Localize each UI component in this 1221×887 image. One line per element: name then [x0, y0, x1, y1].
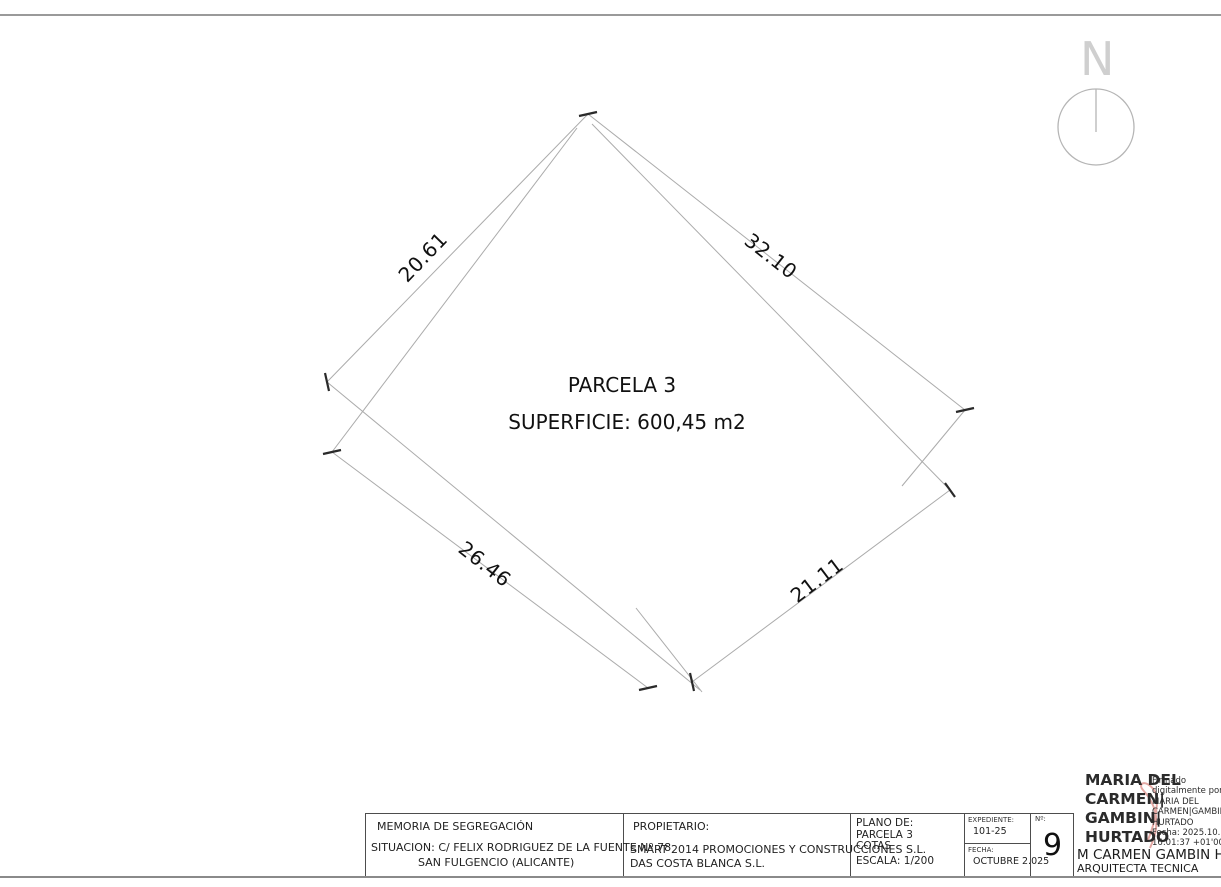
architect-title: ARQUITECTA TECNICA	[1077, 862, 1198, 875]
signature-detail-line: CARMEN|GAMBIN|	[1152, 807, 1221, 817]
titleblock-top-border	[365, 813, 1073, 814]
signature-detail-line: Fecha: 2025.10.30	[1152, 828, 1221, 838]
owner-label: PROPIETARIO:	[633, 820, 709, 833]
plan-label: PLANO DE:	[856, 817, 913, 829]
fecha-label: FECHA:	[968, 846, 994, 854]
signature-detail-line: MARIA DEL	[1152, 797, 1221, 807]
project-title: MEMORIA DE SEGREGACIÓN	[377, 820, 533, 833]
sheet-number: 9	[1043, 828, 1062, 863]
expediente-value: 101-25	[973, 826, 1007, 837]
north-symbol	[1058, 89, 1134, 165]
titleblock-divider	[365, 813, 366, 876]
sheet-number-label: Nº:	[1035, 815, 1046, 823]
situation-line1: SITUACION: C/ FELIX RODRIGUEZ DE LA FUEN…	[371, 841, 671, 854]
titleblock-divider	[964, 843, 1030, 844]
dimension-lines	[327, 114, 965, 692]
signature-detail-line: digitalmente por	[1152, 786, 1221, 796]
expediente-label: EXPEDIENTE:	[968, 816, 1014, 824]
fecha-value: OCTUBRE 2.025	[973, 856, 1049, 867]
plan-scale: ESCALA: 1/200	[856, 855, 934, 867]
plan-sheet: { "drawing": { "parcel_label": "PARCELA …	[0, 0, 1221, 887]
digital-signature-details: Firmado digitalmente por MARIA DEL CARME…	[1152, 776, 1221, 849]
owner-line2: DAS COSTA BLANCA S.L.	[630, 857, 765, 870]
parcel-plan-drawing	[0, 0, 1221, 887]
situation-line2: SAN FULGENCIO (ALICANTE)	[418, 856, 574, 869]
parcel-name-label: PARCELA 3	[472, 373, 772, 397]
signature-detail-line: HURTADO	[1152, 818, 1221, 828]
signature-detail-line: Firmado	[1152, 776, 1221, 786]
titleblock-divider	[1073, 813, 1074, 876]
north-label: N	[1080, 36, 1114, 82]
titleblock-divider	[964, 813, 965, 876]
plan-line2: COTAS	[856, 840, 891, 852]
architect-name: M CARMEN GAMBIN HURTADO	[1077, 847, 1221, 863]
parcel-surface-label: SUPERFICIE: 600,45 m2	[472, 410, 782, 434]
dimension-tick-marks	[323, 112, 974, 691]
